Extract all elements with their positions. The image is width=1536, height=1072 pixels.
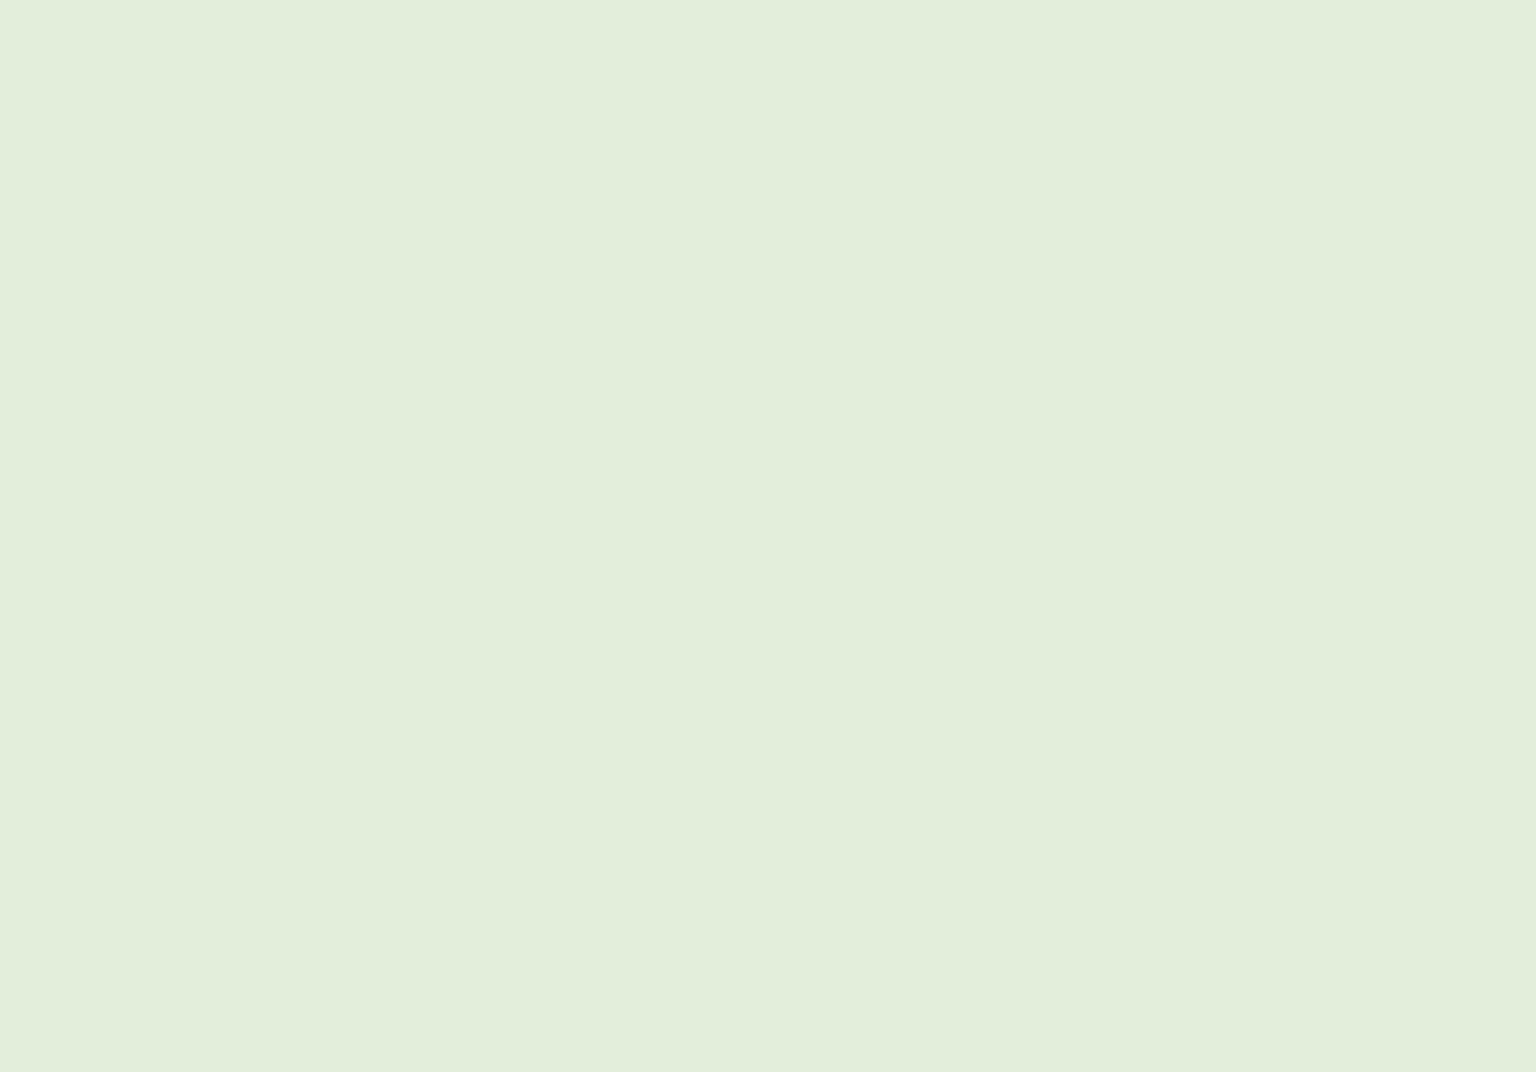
site-plan-rendering	[0, 0, 1536, 1072]
scene-canvas	[0, 0, 1536, 1072]
